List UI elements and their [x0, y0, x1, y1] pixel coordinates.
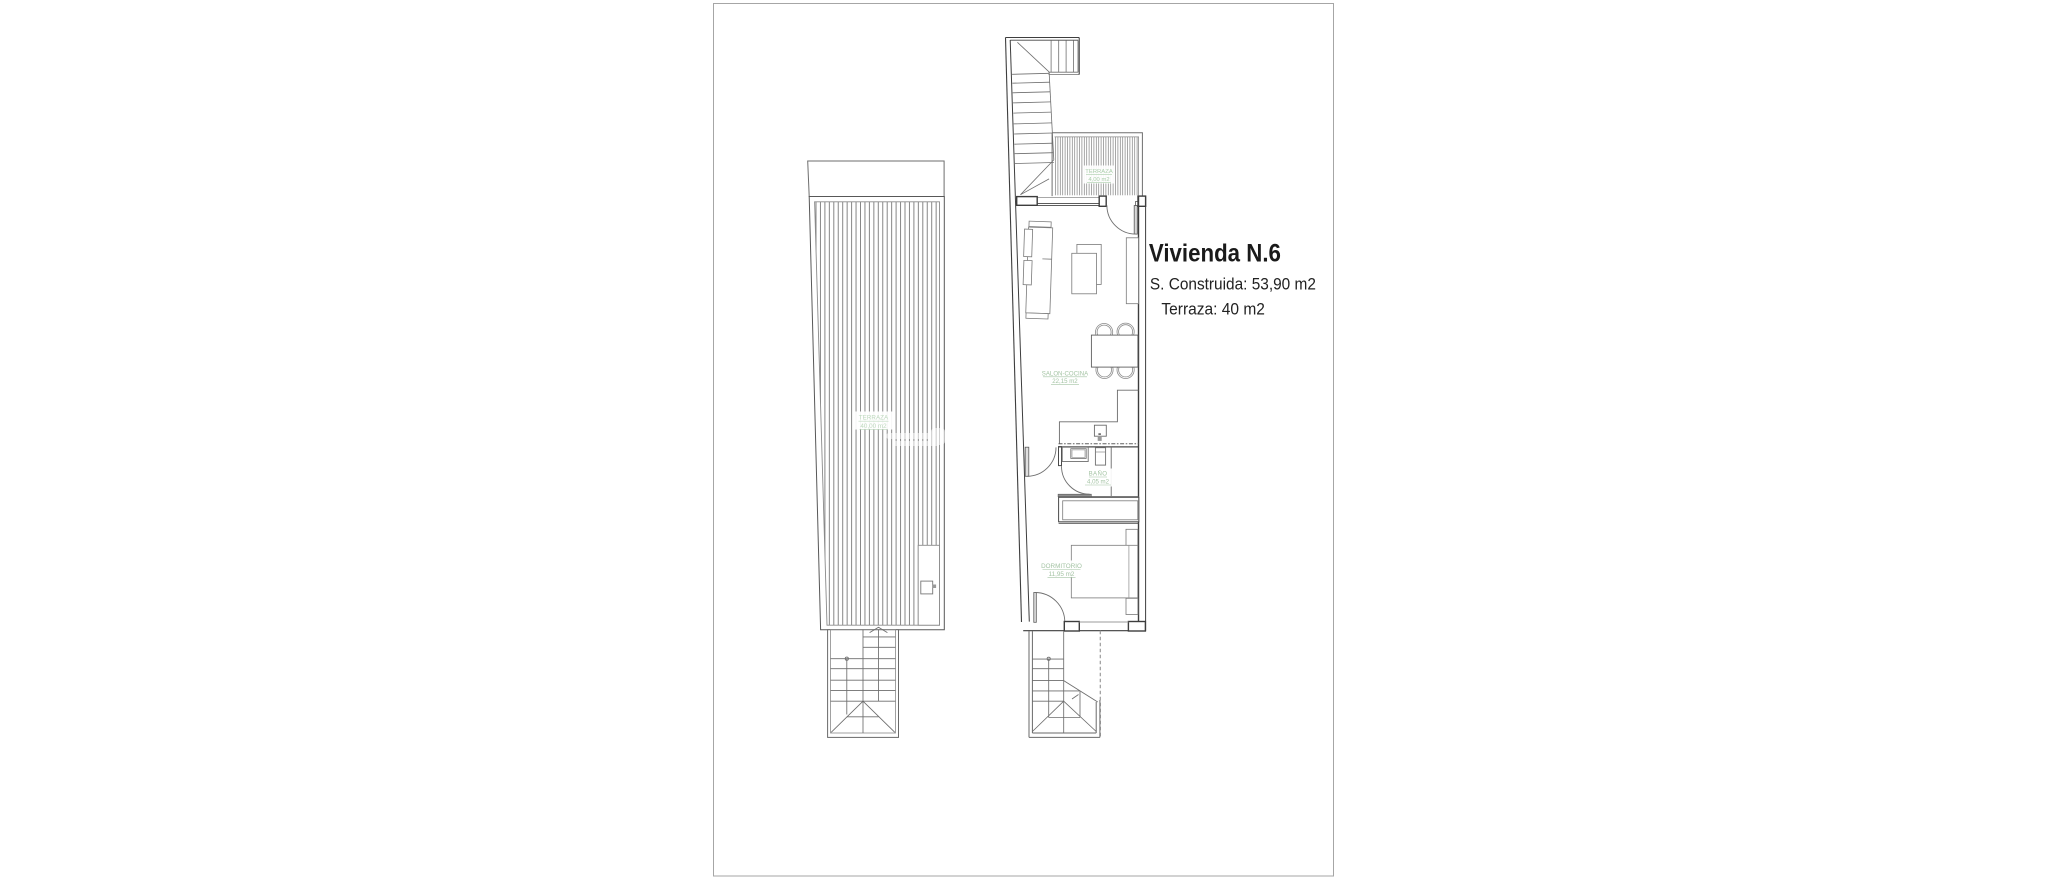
svg-text:11,95 m2: 11,95 m2	[1049, 571, 1075, 578]
svg-text:22,15 m2: 22,15 m2	[1052, 378, 1078, 385]
svg-text:S. Construida: 53,90 m2: S. Construida: 53,90 m2	[1150, 275, 1316, 293]
svg-text:TERRAZA: TERRAZA	[1085, 169, 1113, 175]
svg-text:Vivienda N.6: Vivienda N.6	[1149, 240, 1281, 267]
svg-text:TERRAZA: TERRAZA	[859, 415, 889, 422]
svg-text:4,05 m2: 4,05 m2	[1087, 479, 1110, 486]
svg-text:SALON-COCINA: SALON-COCINA	[1042, 370, 1089, 377]
svg-text:Terraza: 40 m2: Terraza: 40 m2	[1161, 301, 1265, 319]
svg-text:BAÑO: BAÑO	[1089, 471, 1108, 478]
svg-text:DORMITORIO: DORMITORIO	[1041, 563, 1082, 570]
svg-text:40,00 m2: 40,00 m2	[860, 423, 887, 430]
svg-text:4,00 m2: 4,00 m2	[1088, 177, 1109, 183]
